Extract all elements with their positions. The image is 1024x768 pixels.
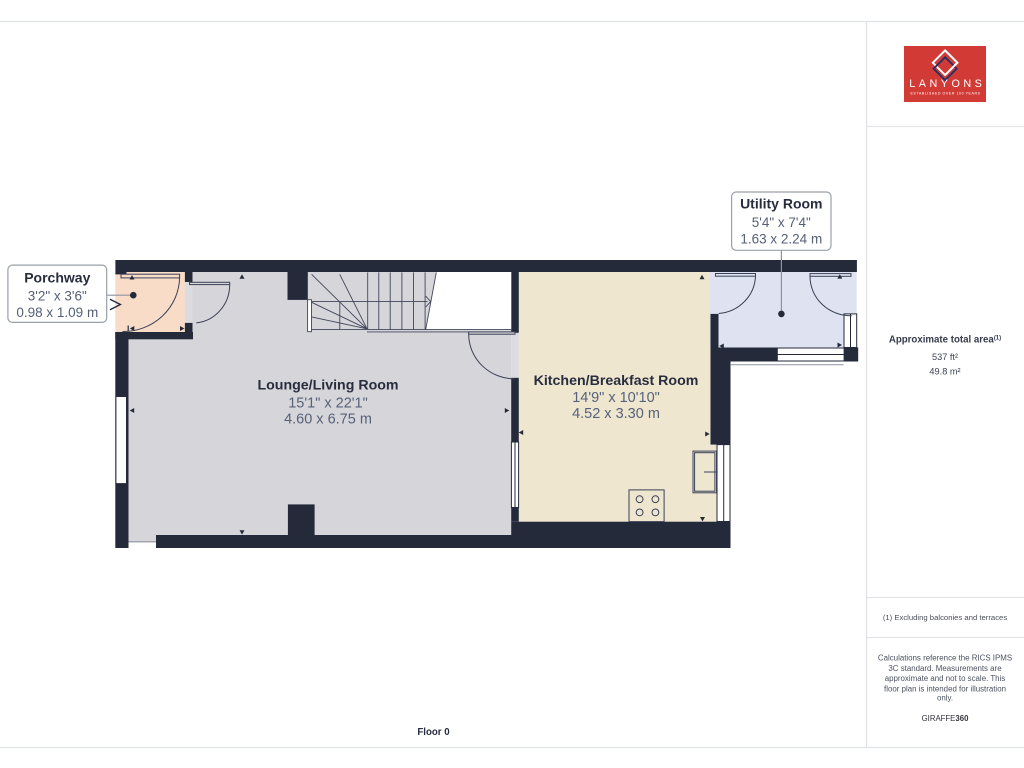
svg-text:LANYONS: LANYONS [909,78,985,90]
svg-text:Floor 0: Floor 0 [417,727,449,738]
svg-text:49.8 m²: 49.8 m² [929,366,960,376]
svg-text:Calculations reference the RIC: Calculations reference the RICS IPMS [878,654,1012,663]
svg-text:Lounge/Living Room: Lounge/Living Room [257,377,398,393]
svg-text:15'1" x 22'1": 15'1" x 22'1" [288,396,368,412]
svg-text:Kitchen/Breakfast Room: Kitchen/Breakfast Room [534,373,699,389]
svg-text:Porchway: Porchway [24,270,90,286]
svg-text:ESTABLISHED OVER 100 YEARS: ESTABLISHED OVER 100 YEARS [910,92,980,96]
svg-text:537 ft²: 537 ft² [932,352,958,362]
svg-text:(1) Excluding balconies and te: (1) Excluding balconies and terraces [883,613,1008,622]
svg-text:4.52 x 3.30 m: 4.52 x 3.30 m [572,406,660,422]
svg-text:3'2" x 3'6": 3'2" x 3'6" [28,288,87,303]
svg-text:floor plan is intended for ill: floor plan is intended for illustration [884,684,1006,693]
svg-text:1.63 x 2.24 m: 1.63 x 2.24 m [740,231,822,246]
svg-text:3C standard. Measurements are: 3C standard. Measurements are [888,664,1002,673]
svg-text:Utility Room: Utility Room [740,196,822,212]
svg-text:Approximate total area(1): Approximate total area(1) [889,335,1001,346]
svg-text:only.: only. [937,694,953,703]
svg-text:0.98 x 1.09 m: 0.98 x 1.09 m [16,305,98,320]
svg-text:5'4" x 7'4": 5'4" x 7'4" [752,215,811,230]
svg-text:14'9" x 10'10": 14'9" x 10'10" [572,390,660,406]
svg-text:approximate and not to scale.: approximate and not to scale. This [885,674,1006,683]
svg-text:4.60 x 6.75 m: 4.60 x 6.75 m [284,412,372,428]
svg-text:GIRAFFE360: GIRAFFE360 [922,714,969,723]
